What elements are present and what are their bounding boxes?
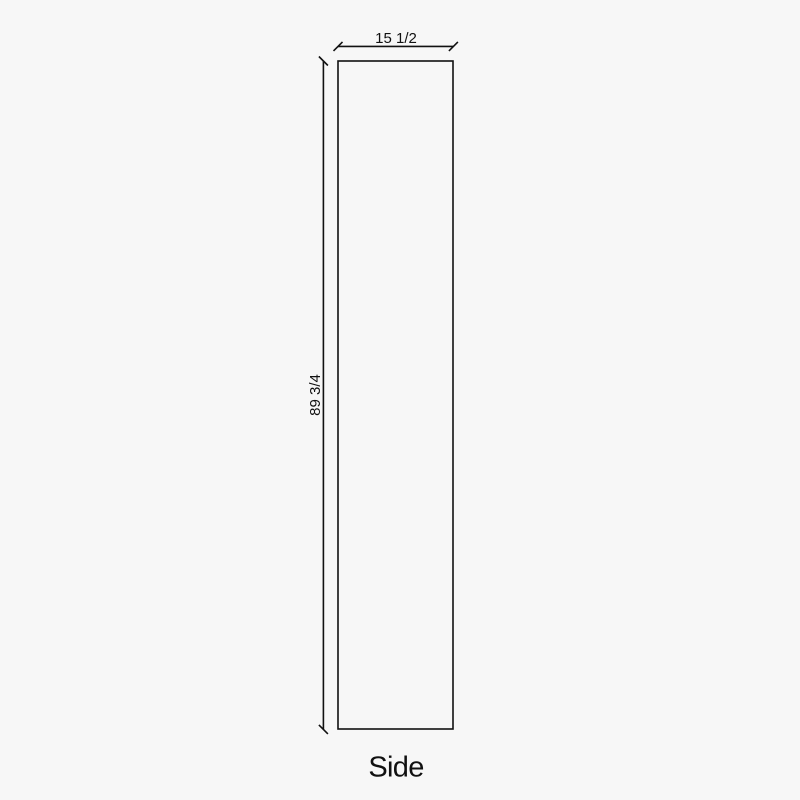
- svg-text:Side: Side: [368, 752, 423, 784]
- svg-text:89 3/4: 89 3/4: [307, 374, 324, 416]
- svg-text:15 1/2: 15 1/2: [375, 30, 417, 47]
